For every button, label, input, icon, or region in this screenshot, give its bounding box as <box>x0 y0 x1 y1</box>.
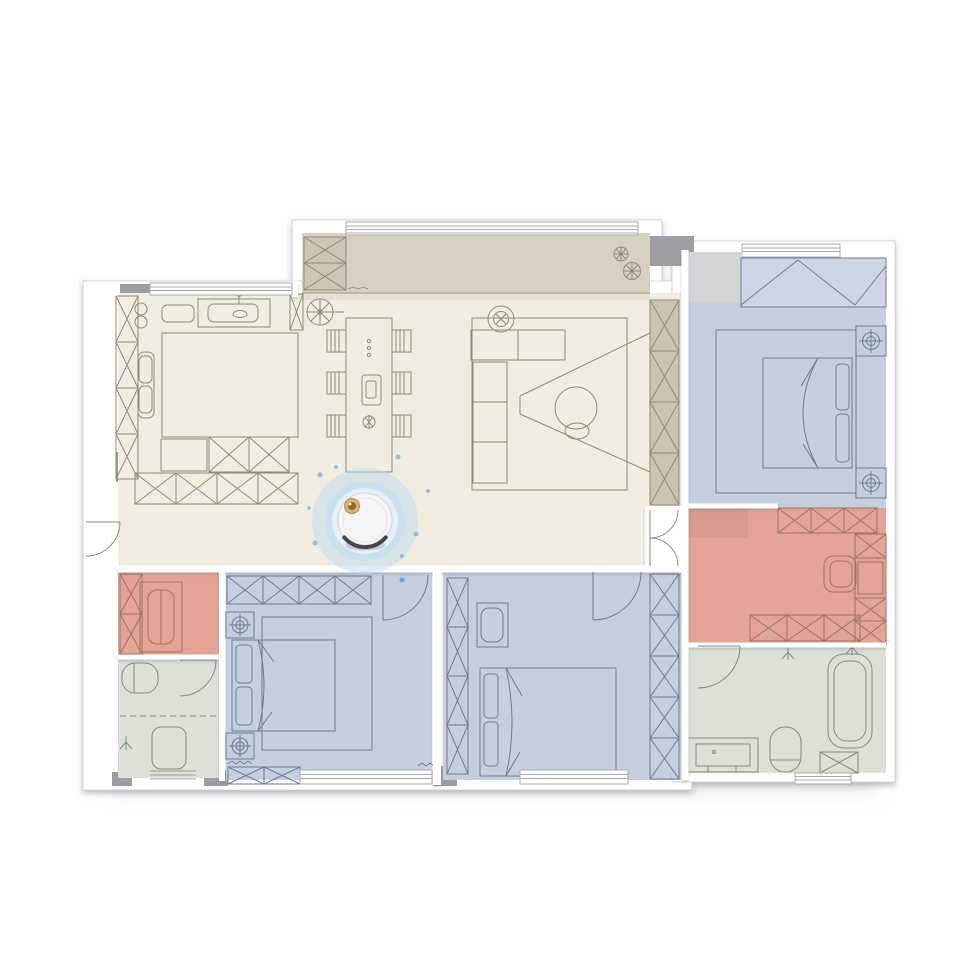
plant-icon <box>614 247 628 261</box>
study-shadow-strip <box>688 508 748 538</box>
balcony-cabinet <box>304 237 346 290</box>
plant-icon <box>624 263 641 280</box>
window-bedroom-middle <box>520 770 628 784</box>
floor-bedroom-left[interactable] <box>226 570 432 780</box>
window-balcony <box>346 222 638 235</box>
robot-lidar-highlight <box>349 503 352 506</box>
floor-bedroom-middle[interactable] <box>443 570 683 780</box>
window-master-bathroom <box>795 773 851 784</box>
balcony-shadow-strip <box>302 293 650 300</box>
window-kitchen <box>150 283 292 295</box>
floor-balcony[interactable] <box>302 233 650 293</box>
floor-plan-canvas <box>0 0 975 975</box>
hallway-cabinet <box>650 300 679 505</box>
window-bedroom-left <box>300 770 432 784</box>
map-dot <box>400 578 405 583</box>
window-master-bedroom <box>742 244 840 257</box>
bedroom-notch-cover <box>683 252 741 302</box>
floor-master-bathroom[interactable] <box>688 645 886 773</box>
wardrobe-band <box>741 258 886 307</box>
